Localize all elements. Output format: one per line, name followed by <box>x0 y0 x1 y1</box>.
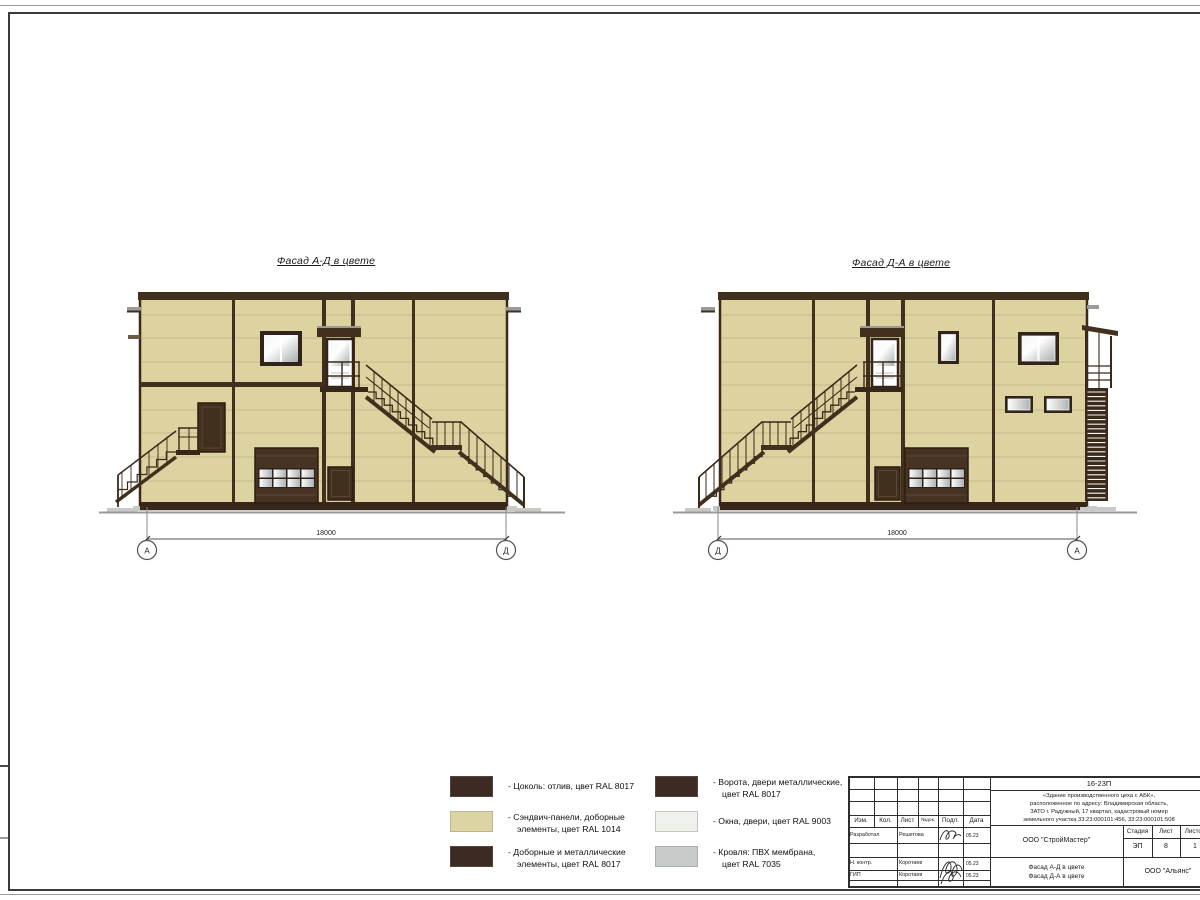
dimension: 18000 А Д <box>138 507 516 560</box>
tb-name: Решетова <box>899 832 924 838</box>
dim-text: 18000 <box>316 530 336 537</box>
legend-label: элементы, цвет RAL 8017 <box>517 858 626 870</box>
tb-date: 05.23 <box>966 833 979 839</box>
entry-door <box>875 467 900 500</box>
sheets-value: 1 <box>1180 843 1200 850</box>
paper-edge-bottom <box>0 894 1200 895</box>
project-description: «Здание производственного цеха с АБК», р… <box>990 792 1200 824</box>
tb-role: ГИП <box>850 872 861 878</box>
sheet-value: 8 <box>1152 843 1180 850</box>
entry-door <box>328 467 353 500</box>
stage-value: ЭП <box>1123 843 1152 850</box>
tb-role: Н. контр. <box>850 860 872 866</box>
tb-name: Коротаев <box>899 860 922 866</box>
tb-col-ndok: №док. <box>918 818 938 823</box>
stage-label: Стадия <box>1123 828 1152 835</box>
facade-da-drawing: 18000 Д А <box>665 285 1140 575</box>
project-code: 16-23П <box>990 779 1200 788</box>
legend-swatch <box>450 776 493 797</box>
legend-label: - Цоколь: отлив, цвет RAL 8017 <box>508 780 634 792</box>
tb-col-list: Лист <box>897 817 918 824</box>
facade-da-title: Фасад Д-А в цвете <box>852 257 950 269</box>
facade-ad-title: Фасад А-Д в цвете <box>277 255 375 267</box>
legend-swatch <box>655 846 698 867</box>
tb-col-data: Дата <box>963 817 990 824</box>
legend-swatch <box>450 811 493 832</box>
legend-label: цвет RAL 7035 <box>722 858 815 870</box>
legend-swatch <box>655 811 698 832</box>
dim-text: 18000 <box>887 530 907 537</box>
drawing-sheet: Фасад А-Д в цвете Фасад Д-А в цвете <box>0 0 1200 900</box>
legend-label: элементы, цвет RAL 1014 <box>517 823 625 835</box>
legend-label: - Окна, двери, цвет RAL 9003 <box>713 815 831 827</box>
building-body <box>127 292 521 510</box>
margin-tick <box>0 765 8 767</box>
tb-role: Разработал <box>850 832 879 838</box>
axis-label: Д <box>503 547 509 556</box>
tb-col-izm: Изм. <box>848 817 874 824</box>
axis-label: А <box>1074 547 1080 556</box>
margin-tick <box>0 837 8 839</box>
signature <box>938 827 964 844</box>
garage-gate <box>255 448 318 503</box>
org-name: ООО "Альянс" <box>1123 868 1200 875</box>
sheet-title: Фасад А-Д в цвете Фасад Д-А в цвете <box>990 863 1123 881</box>
sheet-label: Лист <box>1152 828 1180 835</box>
legend-label: цвет RAL 8017 <box>722 788 842 800</box>
facade-ad-drawing: 18000 А Д <box>95 285 570 575</box>
legend-label: - Ворота, двери металлические, <box>713 776 842 788</box>
axis-label: А <box>144 547 150 556</box>
tb-col-kol: Кол. <box>874 817 897 824</box>
company-name: ООО "СтройМастер" <box>990 837 1123 844</box>
paper-edge-top <box>0 5 1200 6</box>
dimension: 18000 Д А <box>709 507 1087 560</box>
legend-label: - Сэндвич-панели, доборные <box>508 811 625 823</box>
tb-name: Коротаев <box>899 872 922 878</box>
legend-label: - Доборные и металлические <box>508 846 626 858</box>
legend-swatch <box>655 776 698 797</box>
legend-swatch <box>450 846 493 867</box>
legend-label: - Кровля: ПВХ мембрана, <box>713 846 815 858</box>
axis-label: Д <box>715 547 721 556</box>
signature <box>937 856 964 887</box>
tb-date: 05.23 <box>966 873 979 879</box>
sheets-label: Листов <box>1180 828 1200 835</box>
tb-date: 05.23 <box>966 861 979 867</box>
tb-col-podl: Подл. <box>938 817 963 824</box>
garage-gate <box>905 448 968 503</box>
window <box>260 331 302 366</box>
fire-ladder <box>1080 325 1118 511</box>
